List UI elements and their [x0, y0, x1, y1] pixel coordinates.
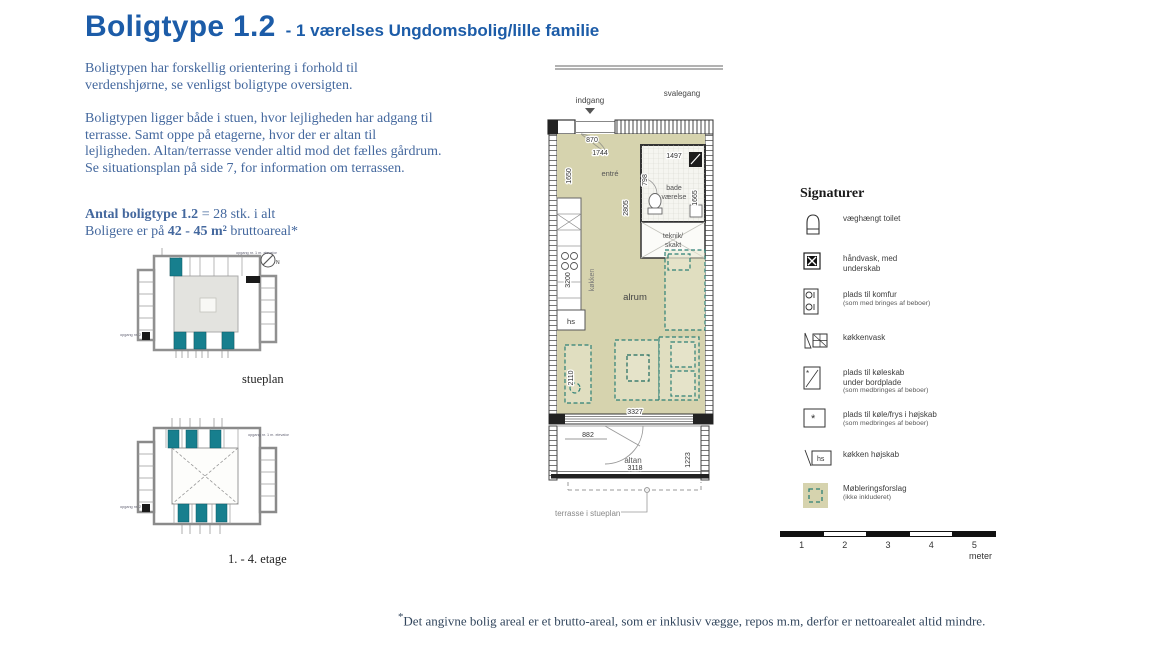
pillow-outline — [668, 254, 690, 270]
dim-798: 798 — [642, 174, 649, 186]
legend-item-komfur: plads til komfur (som med bringes af beb… — [803, 288, 1013, 315]
sofa-cushion-2 — [671, 371, 695, 396]
unit-count-block: Antal boligtype 1.2 = 28 stk. i alt Boli… — [85, 207, 443, 240]
dim-2110: 2110 — [568, 370, 575, 385]
washer-fixture — [690, 205, 702, 217]
scale-tick: 4 — [910, 540, 953, 550]
entry-arrow-icon — [585, 108, 595, 114]
svg-text:*: * — [806, 369, 809, 378]
legend-sublabel: (som medbringes af beboer) — [843, 387, 928, 396]
legend-label-2: under bordplade — [843, 378, 928, 388]
page-title: Boligtype 1.2 - 1 værelses Ungdomsbolig/… — [85, 10, 599, 44]
legend-label-2: underskab — [843, 264, 897, 274]
site-plan-etage: opgang nr. 1 m. elevator opgang nr. 2 — [118, 414, 308, 540]
handwash-sink-icon — [803, 252, 833, 270]
right-wall — [705, 120, 713, 420]
top-rule-lines — [555, 66, 723, 69]
footnote: *Det angivne bolig areal er et brutto-ar… — [398, 611, 1046, 629]
scale-bar: 1 2 3 4 5 meter — [780, 531, 996, 561]
indgang-label: indgang — [576, 96, 604, 105]
legend-label-group: plads til køle/frys i højskab (som medbr… — [843, 408, 937, 428]
table-top-outline — [627, 355, 649, 381]
svg-text:*: * — [811, 413, 816, 425]
etage-note-top: opgang nr. 1 m. elevator — [248, 433, 290, 437]
fridge-under-counter-icon: * — [803, 366, 833, 390]
intro-paragraph-1: Boligtypen har forskellig orientering i … — [85, 61, 443, 94]
stove-icon — [803, 288, 833, 315]
legend-label: plads til køleskab — [843, 366, 928, 378]
legend-heading: Signaturer — [800, 186, 864, 202]
legend-item-kokkenvask: køkkenvask — [803, 331, 1013, 350]
dim-870: 870 — [586, 137, 598, 144]
terrasse-note: terrasse i stueplan — [555, 509, 620, 518]
hs-label: hs — [567, 317, 575, 326]
legend-label: håndvask, med — [843, 252, 897, 264]
legend-label-group: plads til køleskab under bordplade (som … — [843, 366, 928, 396]
sofa-cushion-1 — [671, 342, 695, 367]
top-wall — [548, 120, 713, 134]
scale-segment — [910, 532, 953, 536]
scale-segment — [953, 532, 995, 536]
legend-label-group: håndvask, med underskab — [843, 252, 897, 273]
svalegang-label: svalegang — [664, 89, 700, 98]
compass-north-icon: N — [261, 253, 280, 267]
alrum-label: alrum — [623, 292, 647, 303]
legend-item-toilet: væghængt toilet — [803, 212, 1013, 238]
fridge-freezer-tall-icon: * — [803, 408, 833, 428]
dim-2805: 2805 — [623, 200, 630, 216]
document-page: Boligtype 1.2 - 1 værelses Ungdomsbolig/… — [0, 0, 1152, 648]
scale-segment — [867, 532, 910, 536]
dim-1650: 1650 — [566, 168, 573, 184]
dim-1497: 1497 — [666, 153, 682, 160]
legend-sublabel: (som medbringes af beboer) — [843, 420, 937, 429]
dim-3327: 3327 — [627, 409, 643, 416]
bathroom-label-1: bade — [666, 185, 682, 192]
legend-item-moblering: Møbleringsforslag (ikke inkluderet) — [803, 482, 1013, 509]
legend-item-kolefrys: * plads til køle/frys i højskab (som med… — [803, 408, 1013, 428]
stueplan-caption: stueplan — [242, 372, 284, 387]
page-title-main: Boligtype 1.2 — [85, 10, 276, 44]
scale-tick: 3 — [866, 540, 909, 550]
legend-sublabel: (ikke inkluderet) — [843, 494, 907, 503]
furnishing-suggestion-icon — [803, 482, 833, 509]
tall-cabinet-icon: hs — [803, 448, 833, 468]
dim-882: 882 — [582, 432, 594, 439]
kitchen-sink-icon — [803, 331, 833, 350]
kitchen-label: køkken — [589, 269, 596, 292]
etage-caption: 1. - 4. etage — [228, 552, 287, 567]
scale-ticks: 1 2 3 4 5 — [780, 540, 996, 550]
bathroom-label-2: værelse — [662, 194, 687, 201]
unit-count-line: Antal boligtype 1.2 = 28 stk. i alt — [85, 207, 443, 224]
scale-segment — [824, 532, 867, 536]
stair-core — [142, 504, 150, 512]
legend-label: Møbleringsforslag — [843, 482, 907, 494]
sink-fixture — [689, 152, 702, 167]
left-wall — [549, 120, 557, 420]
legend-label-group: plads til komfur (som med bringes af beb… — [843, 288, 930, 308]
entre-label: entré — [601, 169, 618, 178]
courtyard-center — [200, 298, 216, 312]
legend-item-hojskab: hs køkken højskab — [803, 448, 1013, 468]
unit-area-pre: Boligere er på — [85, 224, 168, 239]
scale-segment — [781, 532, 824, 536]
scale-tick: 1 — [780, 540, 823, 550]
scale-tick: 5 — [953, 540, 996, 550]
dim-1223: 1223 — [685, 452, 692, 468]
unit-area-line: Boligere er på 42 - 45 m² bruttoareal* — [85, 224, 443, 241]
scale-unit-label: meter — [780, 551, 996, 561]
legend-label: plads til komfur — [843, 288, 930, 300]
dim-1665: 1665 — [692, 190, 699, 206]
stueplan-note-top: opgang nr. 1 m. elevator — [236, 251, 278, 255]
etage-note-left: opgang nr. 2 — [120, 505, 141, 509]
legend-label: køkkenvask — [843, 331, 885, 343]
legend-item-handvask: håndvask, med underskab — [803, 252, 1013, 273]
legend-item-koleskab: * plads til køleskab under bordplade (so… — [803, 366, 1013, 396]
compass-label: N — [276, 260, 280, 266]
scale-tick: 2 — [823, 540, 866, 550]
page-title-sub: - 1 værelses Ungdomsbolig/lille familie — [286, 21, 600, 41]
legend-label: væghængt toilet — [843, 212, 900, 224]
dim-3200: 3200 — [565, 272, 572, 288]
scale-bar-segments — [780, 531, 996, 537]
intro-paragraph-2: Boligtypen ligger både i stuen, hvor lej… — [85, 111, 443, 177]
footnote-text: Det angivne bolig areal er et brutto-are… — [403, 613, 985, 628]
main-floor-plan: indgang svalegang — [543, 58, 743, 533]
site-plan-stueplan: N opgang nr. 1 m. elevator opgang nr. 2 — [118, 246, 303, 364]
toilet-fixture — [648, 194, 662, 215]
stueplan-note-left: opgang nr. 2 — [120, 333, 141, 337]
terrace-indicator: terrasse i stueplan — [555, 482, 701, 518]
unit-count-bold: Antal boligtype 1.2 — [85, 207, 198, 222]
altan-label: altan — [624, 456, 641, 465]
dim-1744: 1744 — [592, 150, 608, 157]
legend-label: køkken højskab — [843, 448, 899, 460]
legend-label: plads til køle/frys i højskab — [843, 408, 937, 420]
hs-icon-text: hs — [817, 456, 825, 463]
unit-area-post: bruttoareal* — [227, 224, 298, 239]
teknik-label-1: teknik/ — [663, 233, 683, 240]
dim-3118: 3118 — [627, 465, 642, 472]
unit-count-rest: = 28 stk. i alt — [198, 207, 275, 222]
legend-sublabel: (som med bringes af beboer) — [843, 300, 930, 309]
legend-label-group: Møbleringsforslag (ikke inkluderet) — [843, 482, 907, 502]
teknik-label-2: skakt — [665, 242, 681, 249]
unit-area-bold: 42 - 45 m² — [168, 224, 227, 239]
stair-core-2 — [142, 332, 150, 340]
stair-core — [246, 276, 260, 283]
wall-toilet-icon — [803, 212, 833, 238]
